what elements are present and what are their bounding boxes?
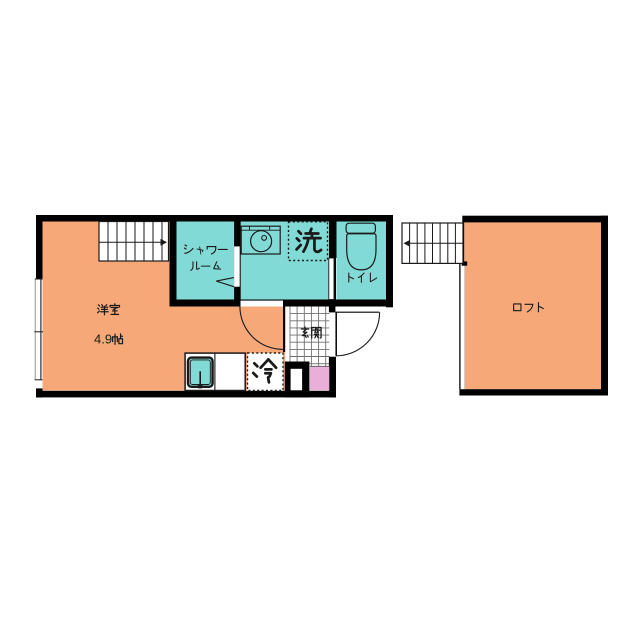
svg-text:4.9: 4.9 [94,332,112,347]
